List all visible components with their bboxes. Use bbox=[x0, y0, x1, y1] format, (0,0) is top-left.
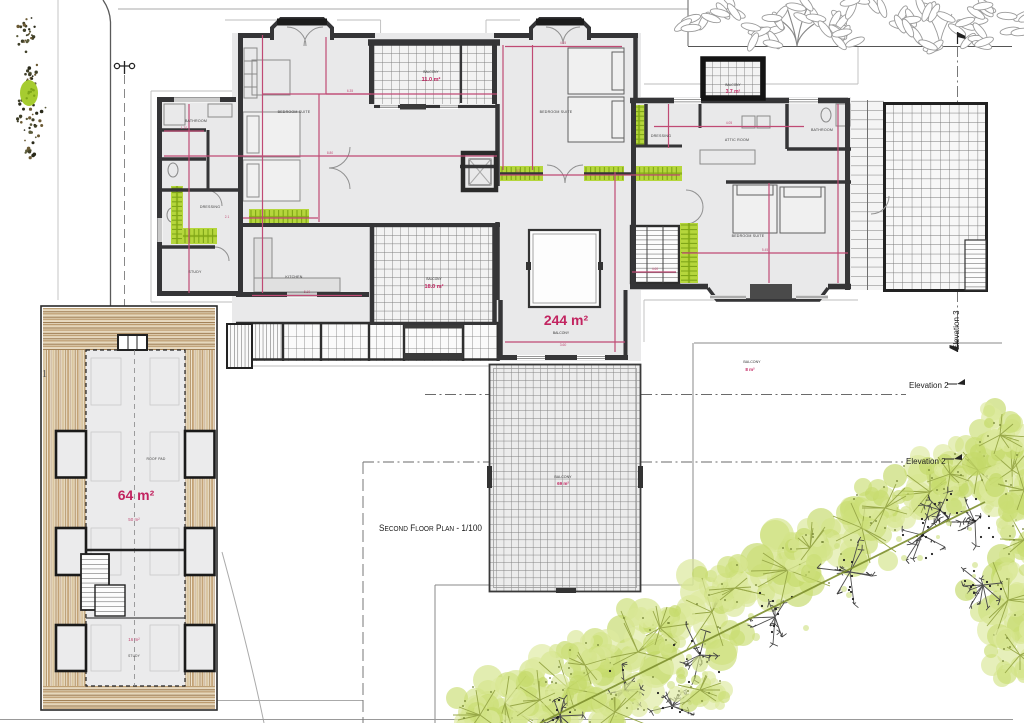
svg-text:4.05: 4.05 bbox=[726, 121, 732, 125]
svg-text:SECOND FLOOR PLAN - 1/100: SECOND FLOOR PLAN - 1/100 bbox=[379, 523, 482, 534]
svg-text:BALCONY: BALCONY bbox=[426, 277, 442, 281]
svg-text:Elevation 2: Elevation 2 bbox=[909, 381, 949, 390]
svg-text:18.0 m²: 18.0 m² bbox=[425, 283, 444, 290]
svg-text:BALCONY: BALCONY bbox=[554, 475, 572, 479]
svg-text:50 m²: 50 m² bbox=[128, 517, 140, 522]
svg-text:5.45: 5.45 bbox=[762, 248, 768, 252]
svg-text:BALCONY: BALCONY bbox=[553, 331, 570, 335]
svg-text:BALCONY: BALCONY bbox=[743, 360, 761, 364]
svg-text:16 m²: 16 m² bbox=[128, 637, 140, 642]
svg-text:BALCONY: BALCONY bbox=[423, 70, 439, 74]
svg-text:Elevation 2: Elevation 2 bbox=[906, 457, 946, 466]
svg-text:KITCHEN: KITCHEN bbox=[285, 275, 302, 279]
svg-text:11.0 m²: 11.0 m² bbox=[422, 76, 441, 83]
svg-text:STUDY: STUDY bbox=[188, 270, 202, 274]
svg-text:BATHROOM: BATHROOM bbox=[811, 128, 833, 132]
svg-text:1.70: 1.70 bbox=[181, 126, 187, 130]
svg-text:BEDROOM SUITE: BEDROOM SUITE bbox=[278, 110, 311, 114]
svg-text:3.60: 3.60 bbox=[560, 343, 567, 347]
svg-text:2.1: 2.1 bbox=[225, 215, 230, 219]
svg-text:BALCONY: BALCONY bbox=[725, 83, 741, 87]
svg-text:3.2: 3.2 bbox=[516, 169, 521, 173]
svg-text:69 m²: 69 m² bbox=[557, 481, 569, 486]
svg-text:4.60: 4.60 bbox=[652, 267, 658, 271]
svg-text:8.80: 8.80 bbox=[327, 151, 333, 155]
svg-text:8 m²: 8 m² bbox=[745, 367, 755, 372]
svg-text:DRESSING: DRESSING bbox=[651, 134, 671, 138]
svg-text:BEDROOM SUITE: BEDROOM SUITE bbox=[732, 234, 765, 238]
svg-text:1: 1 bbox=[42, 369, 47, 380]
svg-text:64 m²: 64 m² bbox=[118, 487, 155, 503]
svg-text:ROOF PAD: ROOF PAD bbox=[146, 457, 165, 461]
svg-text:4.65: 4.65 bbox=[560, 41, 566, 45]
svg-text:244 m²: 244 m² bbox=[544, 312, 589, 328]
svg-text:5.10: 5.10 bbox=[304, 290, 310, 294]
svg-text:STUDY: STUDY bbox=[128, 654, 140, 658]
svg-text:BATHROOM: BATHROOM bbox=[185, 119, 207, 123]
svg-text:Elevation 3: Elevation 3 bbox=[952, 310, 961, 350]
svg-text:3.7 m²: 3.7 m² bbox=[726, 89, 741, 95]
svg-text:BEDROOM SUITE: BEDROOM SUITE bbox=[540, 110, 573, 114]
svg-text:6.35: 6.35 bbox=[347, 89, 353, 93]
svg-text:ATTIC ROOM: ATTIC ROOM bbox=[725, 138, 749, 142]
svg-text:DRESSING: DRESSING bbox=[200, 205, 220, 209]
